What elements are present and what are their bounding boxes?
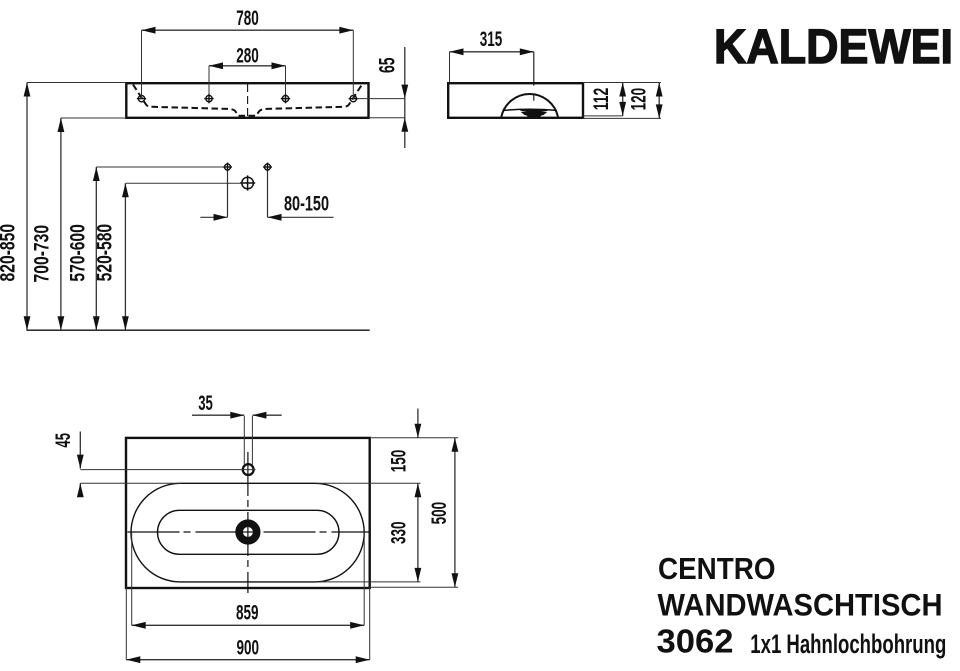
svg-text:35: 35 [198,392,213,415]
svg-text:859: 859 [236,601,259,624]
svg-text:120: 120 [628,88,651,111]
svg-text:3062: 3062 [657,624,734,661]
svg-text:45: 45 [52,433,75,448]
svg-text:1x1 Hahnlochbohrung: 1x1 Hahnlochbohrung [750,629,946,659]
svg-text:520-580: 520-580 [94,224,117,282]
svg-text:315: 315 [480,28,503,51]
svg-text:KALDEWEI: KALDEWEI [714,21,953,74]
svg-text:CENTRO: CENTRO [658,551,776,586]
svg-text:150: 150 [388,450,411,473]
svg-text:900: 900 [236,636,259,659]
svg-text:280: 280 [236,45,259,68]
svg-text:820-850: 820-850 [0,224,20,282]
svg-text:65: 65 [375,57,400,73]
svg-text:700-730: 700-730 [31,225,54,283]
svg-text:500: 500 [428,502,451,525]
svg-text:780: 780 [236,7,259,30]
svg-text:80-150: 80-150 [284,193,329,216]
svg-text:330: 330 [388,522,411,545]
svg-text:570-600: 570-600 [67,224,90,282]
svg-text:112: 112 [590,88,613,111]
svg-text:WANDWASCHTISCH: WANDWASCHTISCH [658,587,943,623]
